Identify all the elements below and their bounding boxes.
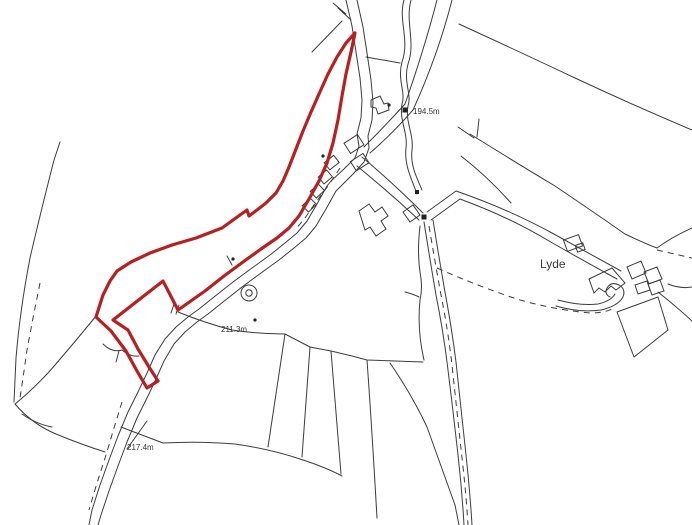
building-lyde-road [563,235,582,252]
lyde-field-quad [617,297,668,357]
building-flag-top [371,96,389,114]
fan-line-4 [367,360,377,518]
fan-line-3 [331,351,341,474]
lyde-outbuilding-1 [627,261,646,279]
spot-height-217: 217.4m [127,443,154,452]
site-boundary-red [96,33,355,388]
survey-marker-square [422,215,427,220]
fork-curve [15,404,105,452]
ne-road-edge-2 [370,0,452,153]
well-ring-inner [246,290,252,296]
lyde-outbuilding-3 [648,280,664,295]
site-plan-map: 194.5m 211.3m 217.4m Lyde [0,0,692,525]
well-ring-outer [241,285,257,301]
spot-height-211: 211.3m [221,325,247,334]
terrace-dashed-path [295,168,340,230]
place-name-lyde: Lyde [540,257,566,271]
ne-field-stub-2 [477,119,479,137]
track-left-edge [424,222,464,525]
track-side-fence [419,226,425,360]
fan-line-2 [302,347,310,457]
lane-centerline-dashed [89,402,122,510]
map-labels: 194.5m 211.3m 217.4m Lyde [127,107,566,452]
lyde-loop-drive-inner [558,294,615,305]
v-bottom-ticks [171,256,232,314]
building-east-1 [344,135,364,154]
fan-line-1 [268,334,285,447]
road-lyde [456,191,621,279]
right-junction-dashed [657,250,692,258]
survey-marker-dot [321,154,324,157]
right-junction-solid [657,228,692,248]
stream-course [366,0,422,194]
ne-field-stub-1 [458,127,474,138]
building-t-shaped [359,204,388,236]
fan-top-polyline [178,312,423,362]
boundary-to-red-corner [15,316,96,404]
fan-line-5 [390,363,459,525]
survey-marker-dot [387,103,390,106]
right-hook [668,284,692,288]
road-northeast [364,0,452,153]
ne-field-curve-1 [459,24,692,130]
survey-marker-dot [231,257,234,260]
track-south [405,220,472,525]
survey-markers [231,103,426,321]
lyde-outbuilding-4 [635,281,650,294]
road-east-branch [357,157,460,220]
lyde-road-lower-edge [460,199,617,279]
junction-ne-stub-1 [427,191,456,212]
survey-marker-dot [253,318,256,321]
left-long-boundary [14,142,60,402]
lyde-house-main [589,268,625,293]
junction-ne-stub-2 [431,199,460,220]
right-lower-line [658,292,692,321]
boundary-under-red-tip [312,21,342,52]
spot-height-194: 194.5m [413,107,440,116]
ne-field-curve-2 [470,134,657,248]
lyde-dashed-path [437,268,612,313]
survey-marker-square [403,108,408,113]
bottom-field-curve [163,442,342,476]
survey-marker-square [415,190,419,194]
stream-connector [366,57,400,63]
map-canvas: 194.5m 211.3m 217.4m Lyde [0,0,692,525]
lyde-road-upper-edge [456,191,621,271]
fence-connector [405,292,419,297]
